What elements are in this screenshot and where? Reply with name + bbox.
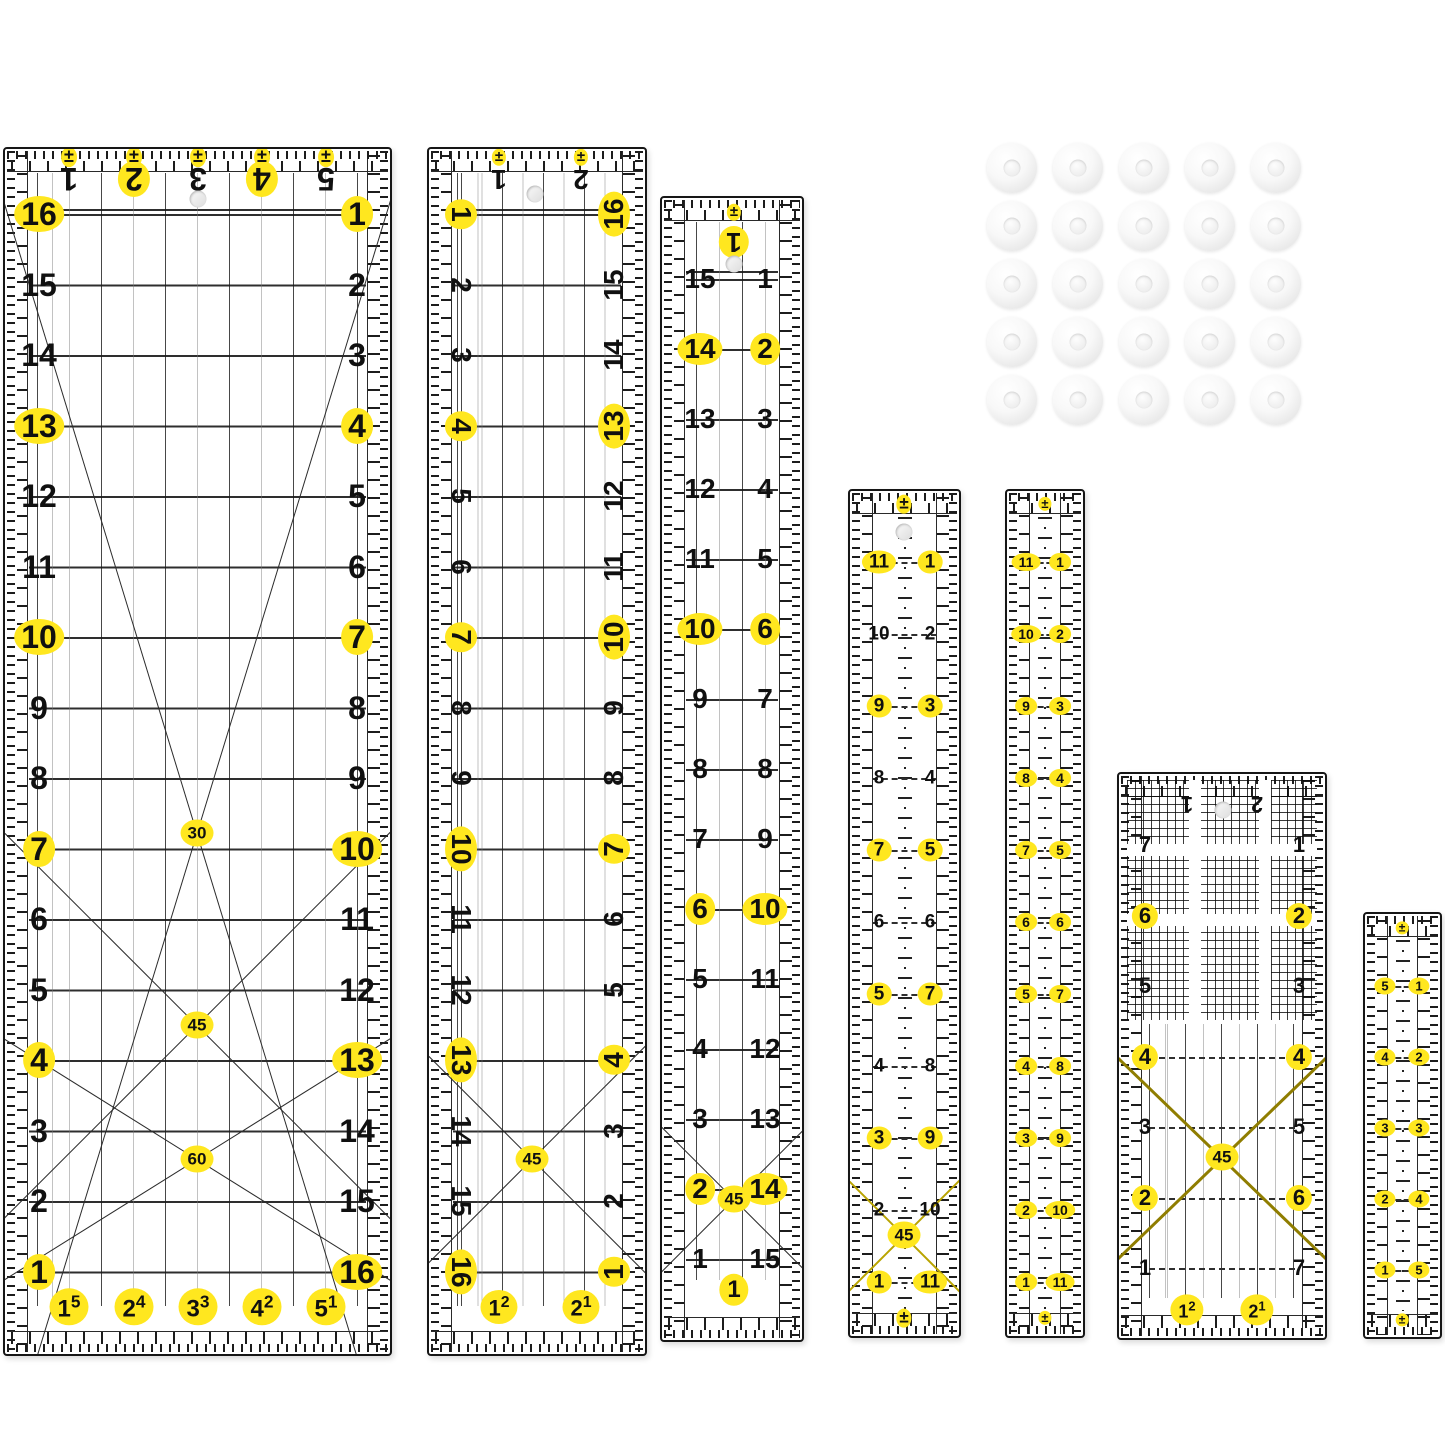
bobbin-disc-hole [1202, 218, 1219, 235]
ruler-number: 1 [1015, 1273, 1037, 1291]
bobbin-disc-hole [1004, 334, 1021, 351]
ruler-number: 11 [1046, 1273, 1075, 1291]
ruler-number: 5 [1049, 841, 1071, 859]
ruler-number: 1 [484, 163, 514, 195]
bobbin-disc [987, 201, 1037, 251]
tick-mark-glyph: ± [1038, 497, 1051, 511]
ruler-number: 15 [445, 1178, 477, 1223]
ruler-number: 8 [445, 693, 477, 723]
ruler-bottom-label: 15 [50, 1288, 89, 1325]
ruler-number: 9 [598, 693, 630, 723]
bobbin-disc [1119, 317, 1169, 367]
ruler-number: 1 [867, 1271, 892, 1294]
ruler-number: 4 [750, 473, 780, 505]
ruler-bottom-label: 21 [562, 1290, 599, 1324]
bobbin-disc-hole [1004, 392, 1021, 409]
ruler-inch-line [1149, 1127, 1295, 1129]
ruler-number: 2 [1049, 625, 1071, 643]
ruler-edge-scale-left [431, 151, 452, 1352]
ruler-number: 6 [598, 904, 630, 934]
bobbin-disc [1185, 317, 1235, 367]
ruler-number: 16 [332, 1254, 382, 1290]
ruler-number: 13 [742, 1103, 787, 1135]
ruler-number: 2 [1286, 903, 1312, 929]
bobbin-disc-hole [1070, 218, 1087, 235]
ruler-number: 8 [750, 753, 780, 785]
ruler-number: 3 [685, 1103, 715, 1135]
bobbin-disc-hole [1004, 160, 1021, 177]
quilting-ruler-1_5in-wide: 1514131211109876543211234567891011121314… [660, 196, 804, 1342]
ruler-number: 1 [1049, 553, 1071, 571]
bobbin-disc-hole [1070, 276, 1087, 293]
bottom-label-main: 1 [488, 1295, 500, 1320]
ruler-number: 3 [1015, 1129, 1037, 1147]
ruler-number: 14 [14, 337, 64, 373]
bobbin-disc [987, 317, 1037, 367]
ruler-number: 4 [1408, 1191, 1429, 1208]
ruler-number: 3 [750, 403, 780, 435]
bobbin-disc-hole [1070, 334, 1087, 351]
bottom-label-main: 2 [123, 1295, 136, 1322]
bobbin-disc-hole [1004, 276, 1021, 293]
ruler-number: 15 [742, 1243, 787, 1275]
bobbin-disc [1251, 375, 1301, 425]
ruler-number: 13 [677, 403, 722, 435]
ruler-number: 6 [867, 911, 892, 934]
tick-mark-glyph: ± [254, 147, 270, 167]
bobbin-disc-hole [1070, 392, 1087, 409]
ruler-edge-scale-bottom [431, 1331, 643, 1352]
bobbin-disc [987, 143, 1037, 193]
ruler-number: 11 [15, 549, 63, 585]
quilting-ruler-large: 1615141312111098765432112345678910111213… [3, 147, 392, 1356]
ruler-edge-scale-bottom [664, 1317, 800, 1338]
hanging-hole [896, 524, 913, 541]
ruler-number: 9 [341, 760, 373, 796]
ruler-edge-scale-top [431, 151, 643, 172]
ruler-number: 14 [598, 332, 630, 377]
ruler-number: 2 [566, 163, 596, 195]
ruler-number: 7 [1132, 832, 1158, 858]
bobbin-disc [1119, 143, 1169, 193]
ruler-bottom-label: 12 [480, 1290, 517, 1324]
ruler-number: 11 [598, 545, 630, 589]
ruler-number: 6 [1049, 913, 1071, 931]
ruler-number: 5 [598, 975, 630, 1005]
ruler-number: 4 [1374, 1049, 1395, 1066]
bottom-label-sup: 1 [328, 1291, 338, 1311]
tick-mark-glyph: ± [727, 204, 741, 221]
ruler-number: 5 [685, 963, 715, 995]
ruler-number: 6 [1132, 903, 1158, 929]
bobbin-disc-hole [1268, 218, 1285, 235]
ruler-number: 5 [918, 839, 943, 862]
ruler-number: 6 [685, 893, 715, 925]
bobbin-disc-hole [1070, 160, 1087, 177]
ruler-number: 8 [598, 763, 630, 793]
tick-mark-glyph: ± [190, 147, 206, 167]
bobbin-disc [1053, 259, 1103, 309]
ruler-number: 11 [743, 963, 787, 995]
bobbin-disc-hole [1136, 218, 1153, 235]
ruler-number: 16 [598, 191, 630, 236]
ruler-edge-scale-right [622, 151, 643, 1352]
ruler-number: 2 [1132, 1185, 1158, 1211]
ruler-number: 10 [742, 893, 787, 925]
ruler-number: 7 [918, 983, 943, 1006]
ruler-number: 4 [918, 767, 943, 790]
ruler-number: 9 [750, 823, 780, 855]
bobbin-disc-hole [1202, 334, 1219, 351]
ruler-edge-scale-right [779, 200, 800, 1338]
tick-mark-glyph: ± [1396, 921, 1409, 934]
ruler-number: 6 [1015, 913, 1037, 931]
ruler-bottom-label: 24 [115, 1288, 154, 1325]
ruler-number: 6 [445, 552, 477, 582]
ruler-number: 14 [677, 333, 722, 365]
ruler-number: 6 [23, 901, 55, 937]
ruler-number: 3 [23, 1113, 55, 1149]
ruler-number: 10 [445, 826, 477, 871]
bobbin-disc [1251, 201, 1301, 251]
ruler-number: 3 [598, 1116, 630, 1146]
ruler-number: 1 [341, 196, 373, 232]
ruler-bottom-label: 12 [1170, 1294, 1203, 1325]
bobbin-disc [1185, 143, 1235, 193]
bobbin-disc-hole [1202, 276, 1219, 293]
tick-mark-glyph: ± [574, 149, 588, 166]
ruler-inch-line [1149, 1268, 1295, 1270]
ruler-number: 3 [1374, 1120, 1395, 1137]
ruler-edge-scale-bottom [1121, 1315, 1323, 1336]
ruler-number: 9 [685, 683, 715, 715]
ruler-number: 3 [918, 695, 943, 718]
angle-label: 60 [181, 1146, 214, 1173]
bottom-label-sup: 2 [501, 1294, 510, 1311]
quilting-ruler-2in-wide: 1234567891011121314151616151413121110987… [427, 147, 647, 1356]
ruler-number: 1 [750, 263, 780, 295]
ruler-number: 11 [913, 1271, 947, 1294]
ruler-number: 5 [867, 983, 892, 1006]
ruler-number: 12 [445, 967, 477, 1012]
ruler-number: 15 [14, 267, 64, 303]
angle-label: 45 [516, 1146, 549, 1173]
bobbin-disc-hole [1004, 218, 1021, 235]
ruler-number: 6 [918, 911, 943, 934]
ruler-number: 5 [1132, 973, 1158, 999]
ruler-number: 1 [1174, 791, 1200, 817]
ruler-number: 12 [598, 473, 630, 518]
ruler-number: 5 [23, 972, 55, 1008]
ruler-edge-scale-bottom [7, 1331, 388, 1352]
ruler-inch-line [1149, 1057, 1295, 1059]
ruler-angle-line [3, 147, 392, 1356]
bobbin-disc-hole [1202, 392, 1219, 409]
ruler-number: 10 [861, 623, 896, 646]
angle-label: 45 [1206, 1144, 1239, 1171]
ruler-number: 9 [445, 763, 477, 793]
quilting-ruler-narrow: 11109876543211234567891011±± [1005, 489, 1085, 1338]
ruler-number: 11 [862, 551, 896, 574]
ruler-number: 15 [598, 262, 630, 307]
bobbin-disc [1119, 259, 1169, 309]
ruler-number: 2 [1015, 1201, 1037, 1219]
ruler-number: 4 [867, 1055, 892, 1078]
ruler-number: 3 [1132, 1114, 1158, 1140]
ruler-number: 1 [1286, 832, 1312, 858]
ruler-bottom-label: 1 [719, 1274, 748, 1306]
bottom-label-sup: 4 [136, 1291, 146, 1311]
tick-mark-glyph: ± [61, 147, 77, 167]
ruler-number: 10 [598, 614, 630, 659]
ruler-number: 10 [332, 831, 382, 867]
hanging-hole [726, 256, 743, 273]
bobbin-disc [1053, 143, 1103, 193]
ruler-number: 4 [598, 1045, 630, 1075]
ruler-number: 4 [685, 1033, 715, 1065]
ruler-number: 12 [677, 473, 722, 505]
bobbin-disc [987, 259, 1037, 309]
ruler-number: 7 [867, 839, 892, 862]
ruler-number: 2 [867, 1199, 892, 1222]
ruler-number: 1 [23, 1254, 55, 1290]
bottom-label-main: 2 [570, 1295, 582, 1320]
tick-mark-glyph: ± [896, 495, 911, 514]
bobbin-disc-hole [1202, 160, 1219, 177]
ruler-number: 1 [598, 1257, 630, 1287]
ruler-number: 7 [1015, 841, 1037, 859]
ruler-number: 4 [1132, 1044, 1158, 1070]
ruler-number: 12 [14, 478, 64, 514]
ruler-number: 12 [742, 1033, 787, 1065]
ruler-grid [453, 173, 621, 1306]
quilting-ruler-mini: 5432112345±± [1363, 912, 1442, 1339]
angle-label: 30 [181, 820, 214, 847]
tick-mark-glyph: ± [896, 1309, 911, 1328]
ruler-number: 4 [1015, 1057, 1037, 1075]
ruler-number: 14 [445, 1108, 477, 1153]
bottom-label-main: 1 [727, 1276, 740, 1303]
ruler-number: 7 [750, 683, 780, 715]
ruler-number: 7 [341, 619, 373, 655]
ruler-bottom-label: 42 [243, 1288, 282, 1325]
bottom-label-sup: 1 [583, 1294, 592, 1311]
ruler-number: 3 [867, 1127, 892, 1150]
tick-mark-glyph: ± [1038, 1311, 1051, 1325]
ruler-number: 10 [14, 619, 64, 655]
ruler-number: 2 [23, 1183, 55, 1219]
ruler-number: 3 [341, 337, 373, 373]
bobbin-disc-hole [1136, 392, 1153, 409]
ruler-number: 10 [912, 1199, 947, 1222]
ruler-number: 1 [445, 199, 477, 229]
ruler-number: 6 [341, 549, 373, 585]
ruler-number: 6 [1286, 1185, 1312, 1211]
ruler-inch-line [1149, 1198, 1295, 1200]
bobbin-disc-hole [1268, 392, 1285, 409]
ruler-angle-line [3, 147, 392, 1356]
ruler-number: 9 [1015, 697, 1037, 715]
bobbin-disc-hole [1268, 334, 1285, 351]
ruler-number: 5 [341, 478, 373, 514]
tick-mark-glyph: ± [1396, 1313, 1409, 1326]
ruler-number: 3 [1049, 697, 1071, 715]
ruler-number: 3 [445, 340, 477, 370]
ruler-number: 14 [332, 1113, 382, 1149]
ruler-number: 8 [23, 760, 55, 796]
bobbin-disc [1185, 259, 1235, 309]
bottom-label-sup: 1 [1258, 1298, 1265, 1313]
bobbin-disc [1251, 259, 1301, 309]
hanging-hole [190, 191, 207, 208]
ruler-number: 9 [1049, 1129, 1071, 1147]
bottom-label-main: 5 [315, 1295, 328, 1322]
quilting-square-ruler: 7654321123456712122145 [1117, 772, 1327, 1340]
ruler-number: 4 [23, 1042, 55, 1078]
bobbin-disc [1053, 317, 1103, 367]
ruler-number: 1 [1132, 1255, 1158, 1281]
ruler-number: 5 [1286, 1114, 1312, 1140]
bottom-label-main: 3 [187, 1295, 200, 1322]
ruler-number: 4 [341, 408, 373, 444]
ruler-number: 8 [1049, 1057, 1071, 1075]
bobbin-disc [1119, 375, 1169, 425]
ruler-number: 15 [677, 263, 722, 295]
ruler-number: 7 [598, 834, 630, 864]
ruler-number: 1 [685, 1243, 715, 1275]
bobbin-disc [1053, 201, 1103, 251]
bottom-label-main: 1 [58, 1295, 71, 1322]
ruler-number: 5 [1408, 1262, 1429, 1279]
bottom-label-sup: 2 [1188, 1298, 1195, 1313]
ruler-number: 1 [1374, 1262, 1395, 1279]
bobbin-disc-hole [1268, 160, 1285, 177]
ruler-number: 7 [23, 831, 55, 867]
bottom-label-sup: 3 [200, 1291, 210, 1311]
bobbin-disc-hole [1136, 334, 1153, 351]
ruler-number: 11 [333, 901, 381, 937]
ruler-number: 8 [918, 1055, 943, 1078]
angle-label: 45 [181, 1012, 214, 1039]
ruler-number: 4 [1049, 769, 1071, 787]
ruler-number: 16 [14, 196, 64, 232]
hanging-hole [527, 186, 544, 203]
bobbin-disc-hole [1136, 276, 1153, 293]
bottom-label-main: 4 [251, 1295, 264, 1322]
bobbin-disc [1119, 201, 1169, 251]
ruler-number: 2 [598, 1186, 630, 1216]
ruler-number: 9 [867, 695, 892, 718]
ruler-edge-scale-left [664, 200, 685, 1338]
tick-mark-glyph: ± [126, 147, 142, 167]
tick-mark-glyph: ± [318, 147, 334, 167]
ruler-number: 1 [918, 551, 943, 574]
product-photo-quilting-ruler-set: 1615141312111098765432112345678910111213… [0, 0, 1445, 1445]
ruler-number: 7 [1049, 985, 1071, 1003]
angle-label: 45 [888, 1222, 921, 1249]
bottom-label-main: 2 [1248, 1301, 1258, 1321]
ruler-number: 10 [1011, 625, 1041, 643]
ruler-edge-scale-left [7, 151, 28, 1352]
tick-mark-glyph: ± [492, 149, 506, 166]
ruler-number: 5 [1015, 985, 1037, 1003]
ruler-number: 5 [1374, 978, 1395, 995]
ruler-number: 13 [445, 1037, 477, 1082]
ruler-edge-scale-right [367, 151, 388, 1352]
ruler-number: 8 [867, 767, 892, 790]
ruler-number: 3 [1286, 973, 1312, 999]
ruler-number: 5 [750, 543, 780, 575]
ruler-number: 5 [445, 481, 477, 511]
ruler-number: 10 [677, 613, 722, 645]
bottom-label-main: 1 [1178, 1301, 1188, 1321]
ruler-center-scale [895, 517, 915, 1310]
ruler-number: 7 [1286, 1255, 1312, 1281]
bobbin-disc-hole [1268, 276, 1285, 293]
ruler-grid [29, 173, 366, 1306]
ruler-number: 13 [598, 403, 630, 448]
ruler-number: 2 [1244, 791, 1270, 817]
bobbin-disc [1185, 375, 1235, 425]
ruler-number: 12 [332, 972, 382, 1008]
ruler-number: 9 [23, 690, 55, 726]
hanging-hole [1215, 802, 1232, 819]
ruler-number: 11 [445, 897, 477, 941]
bobbin-disc [1185, 201, 1235, 251]
bobbin-disc-hole [1136, 160, 1153, 177]
ruler-number: 2 [918, 623, 943, 646]
ruler-number: 2 [1374, 1191, 1395, 1208]
ruler-number: 2 [685, 1173, 715, 1205]
ruler-number: 4 [445, 411, 477, 441]
ruler-number: 11 [1012, 553, 1041, 571]
ruler-number: 2 [445, 270, 477, 300]
angle-label: 45 [718, 1186, 751, 1213]
ruler-number: 9 [918, 1127, 943, 1150]
quilting-ruler-1in-wide: 11109876543211234567891011±±45 [848, 489, 961, 1338]
ruler-number: 10 [1045, 1201, 1075, 1219]
bottom-label-sup: 5 [71, 1291, 81, 1311]
bobbin-disc [987, 375, 1037, 425]
bobbin-disc [1251, 317, 1301, 367]
ruler-bottom-label: 51 [307, 1288, 346, 1325]
ruler-edge-scale-top [1121, 776, 1323, 797]
ruler-number: 7 [445, 622, 477, 652]
ruler-number: 15 [332, 1183, 382, 1219]
ruler-number: 13 [332, 1042, 382, 1078]
ruler-bottom-label: 33 [179, 1288, 218, 1325]
ruler-number: 8 [685, 753, 715, 785]
ruler-number: 4 [1286, 1044, 1312, 1070]
ruler-number: 2 [341, 267, 373, 303]
ruler-number: 1 [1408, 978, 1429, 995]
ruler-number: 2 [750, 333, 780, 365]
ruler-number: 8 [341, 690, 373, 726]
ruler-number: 13 [14, 408, 64, 444]
ruler-number: 16 [445, 1249, 477, 1294]
ruler-number: 2 [1408, 1049, 1429, 1066]
bobbin-disc [1251, 143, 1301, 193]
ruler-number: 1 [719, 226, 749, 258]
bobbin-disc [1053, 375, 1103, 425]
ruler-number: 11 [678, 543, 722, 575]
ruler-number: 7 [685, 823, 715, 855]
ruler-bottom-label: 21 [1240, 1294, 1273, 1325]
ruler-number: 6 [750, 613, 780, 645]
ruler-number: 8 [1015, 769, 1037, 787]
ruler-number: 3 [1408, 1120, 1429, 1137]
bottom-label-sup: 2 [264, 1291, 274, 1311]
